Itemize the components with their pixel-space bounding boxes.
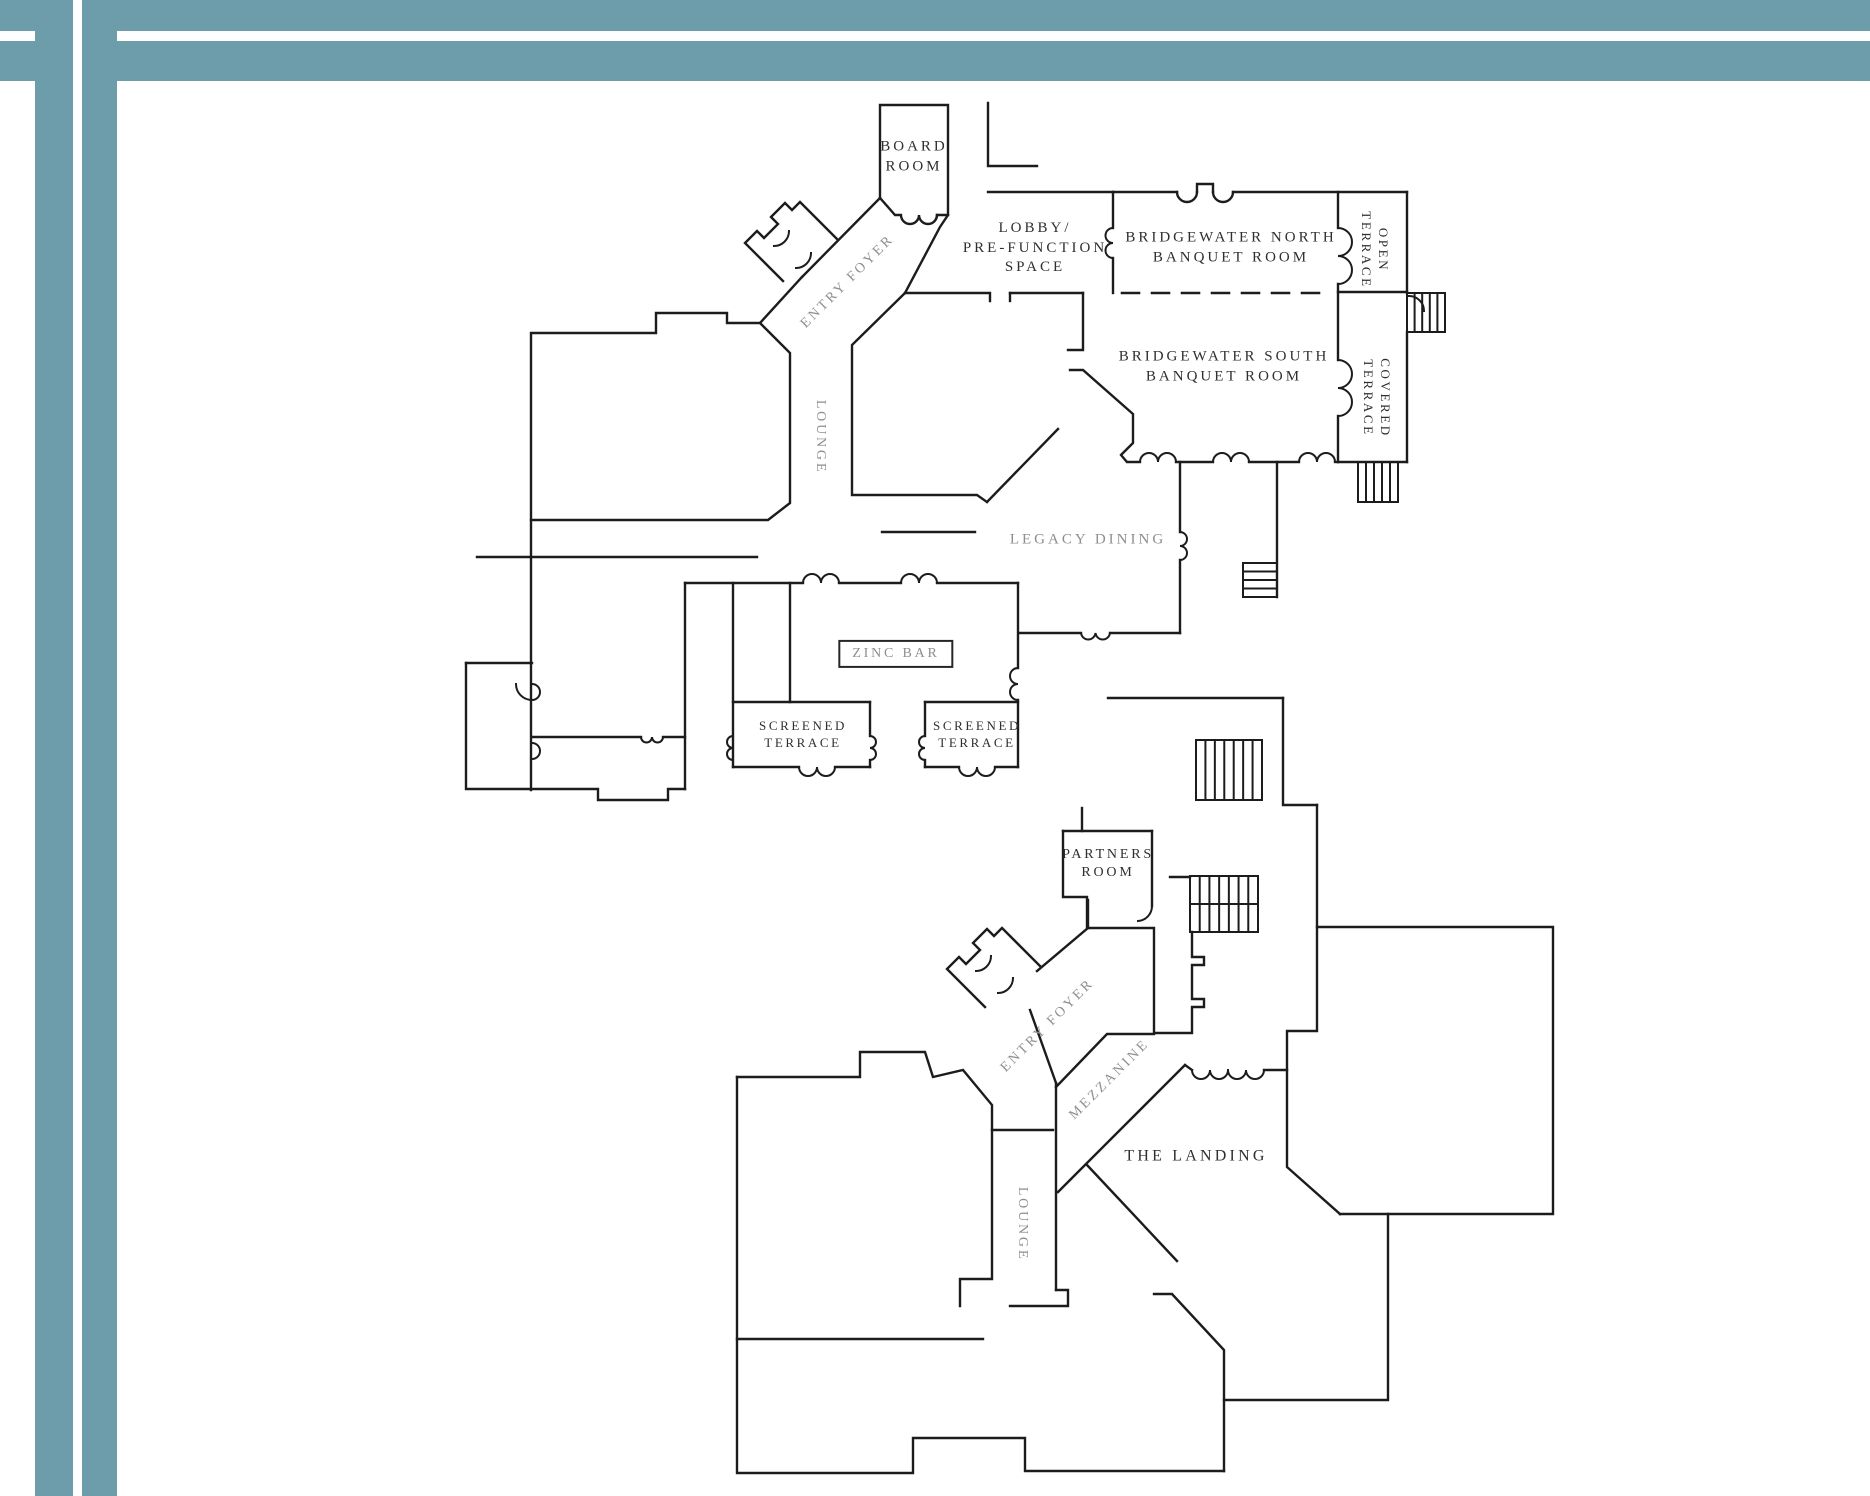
room-label-legacy-dining: LEGACY DINING <box>1010 530 1166 550</box>
room-label-lobby-pre-function-space: LOBBY/PRE-FUNCTIONSPACE <box>963 219 1107 278</box>
frame-left-bar-outer <box>35 0 73 1496</box>
room-label-line: LEGACY DINING <box>1010 530 1166 550</box>
room-label-line: SCREENED <box>759 718 847 735</box>
room-label-lounge-mezzanine: LOUNGE <box>1013 1187 1031 1261</box>
room-label-line: ROOM <box>880 157 948 177</box>
room-label-line: TERRACE <box>759 735 847 752</box>
room-label-covered-terrace: COVEREDTERRACE <box>1359 358 1393 438</box>
room-label-line: ZINC BAR <box>852 645 939 663</box>
room-label-line: PARTNERS <box>1062 846 1154 864</box>
room-label-line: LOUNGE <box>1013 1187 1031 1261</box>
room-label-zinc-bar: ZINC BAR <box>838 640 953 668</box>
room-label-screened-terrace-west: SCREENEDTERRACE <box>759 718 847 752</box>
room-label-bridgewater-north-banquet-room: BRIDGEWATER NORTHBANQUET ROOM <box>1125 229 1336 268</box>
room-label-line: BANQUET ROOM <box>1125 248 1336 268</box>
room-label-line: PRE-FUNCTION <box>963 238 1107 258</box>
room-label-board-room: BOARDROOM <box>880 138 948 177</box>
room-label-line: TERRACE <box>1359 358 1376 438</box>
walls <box>466 103 1553 1473</box>
floor-plan-sheet: BOARDROOMLOBBY/PRE-FUNCTIONSPACEBRIDGEWA… <box>0 0 1870 1496</box>
room-label-line: LOUNGE <box>811 400 829 474</box>
frame-left-bar-inner <box>82 0 117 1496</box>
room-label-line: ROOM <box>1062 864 1154 882</box>
room-label-line: COVERED <box>1376 358 1393 438</box>
room-label-line: TERRACE <box>933 735 1021 752</box>
room-label-line: BANQUET ROOM <box>1119 367 1330 387</box>
room-label-open-terrace: OPENTERRACE <box>1357 211 1391 288</box>
room-label-line: THE LANDING <box>1124 1147 1267 1168</box>
frame-gap <box>73 0 82 1496</box>
room-label-screened-terrace-east: SCREENEDTERRACE <box>933 718 1021 752</box>
frame-top-band-outer <box>0 0 1870 31</box>
frame-top-band-inner <box>0 41 1870 81</box>
room-label-bridgewater-south-banquet-room: BRIDGEWATER SOUTHBANQUET ROOM <box>1119 348 1330 387</box>
room-label-line: SCREENED <box>933 718 1021 735</box>
room-label-line: SPACE <box>963 258 1107 278</box>
room-label-partners-room: PARTNERSROOM <box>1062 846 1154 882</box>
room-label-line: TERRACE <box>1357 211 1374 288</box>
room-label-the-landing: THE LANDING <box>1124 1147 1267 1168</box>
room-label-lounge-main: LOUNGE <box>811 400 829 474</box>
room-label-line: BRIDGEWATER SOUTH <box>1119 348 1330 368</box>
room-label-line: LOBBY/ <box>963 219 1107 239</box>
room-label-line: OPEN <box>1374 211 1391 288</box>
room-label-line: BRIDGEWATER NORTH <box>1125 229 1336 249</box>
room-label-line: BOARD <box>880 138 948 158</box>
